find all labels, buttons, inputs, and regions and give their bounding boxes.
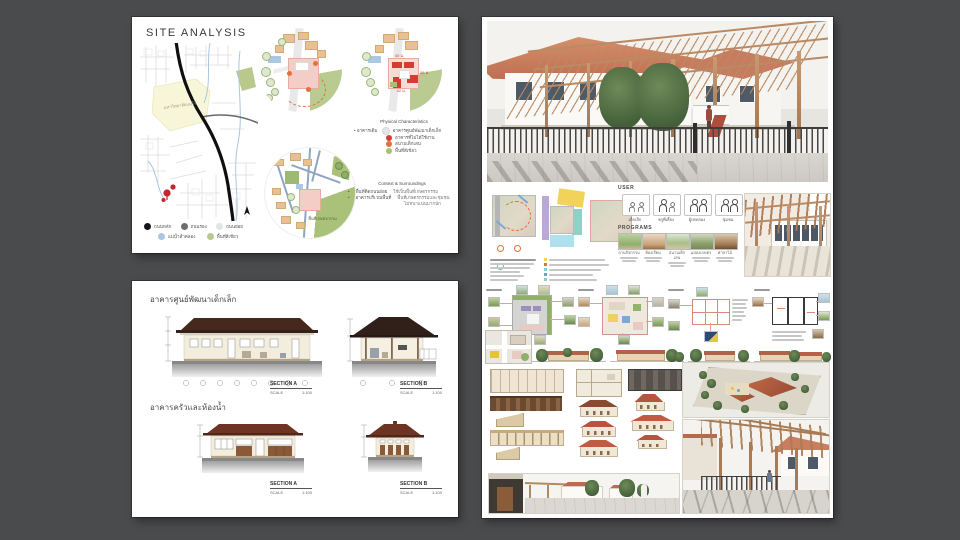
concept-notes-2 — [544, 257, 610, 282]
floor-plan-strip — [490, 369, 564, 393]
site-elevation-1 — [532, 340, 606, 364]
tree — [637, 63, 689, 131]
building1-section-b-drawing — [344, 309, 442, 391]
panorama-render — [488, 473, 680, 514]
city-street-map: มหาวิทยาลัยแม่โจ้ — [140, 43, 258, 221]
program-photo-4: แปลงเกษตร — [690, 233, 712, 264]
interior-render — [744, 193, 831, 277]
presentation-canvas: SITE ANALYSIS — [0, 0, 960, 540]
house-elevation — [580, 421, 616, 436]
hero-exterior-render — [487, 21, 828, 182]
site-analysis-board: SITE ANALYSIS — [132, 17, 458, 253]
site-elevation-4 — [754, 340, 829, 364]
wide-house-elevation — [630, 415, 674, 430]
person-figure — [767, 470, 772, 482]
gate-walkway-render — [682, 419, 830, 514]
mini-site-plan — [485, 330, 532, 364]
statue — [641, 484, 647, 497]
building2-section-a-drawing — [194, 417, 312, 479]
storefront-elevation — [490, 396, 562, 411]
ground-shadows — [487, 161, 697, 182]
section-b-label-2: SECTION B SCALE1:100 — [400, 481, 442, 495]
site-elevation-3 — [688, 340, 750, 364]
building2-title: อาคารครัวและห้องน้ำ — [150, 401, 226, 414]
section-a-label-2: SECTION A SCALE1:100 — [270, 481, 312, 495]
ground-grid-shadows — [683, 490, 829, 513]
pavilion-elevation — [636, 435, 666, 448]
concept-notes-1 — [490, 257, 538, 283]
site-analysis-title: SITE ANALYSIS — [146, 27, 247, 39]
plan-cluster-outline — [668, 287, 750, 343]
dim-top: 40 ม. — [395, 53, 404, 58]
dim-right: 56 ม. — [420, 70, 429, 75]
house-elevation — [578, 400, 618, 416]
user-group-teacher — [653, 194, 681, 216]
user-group-community — [715, 194, 743, 216]
section-a-label: SECTION A SCALE1:100 — [270, 381, 312, 395]
program-photo-3: สนามเด็กเล่น — [666, 233, 688, 269]
dim-bottom: 42 ม. — [397, 88, 406, 93]
user-title: USER — [618, 185, 634, 191]
context-legend: Context & Surroundings • พื้นที่ติดถนนย่… — [348, 181, 456, 207]
program-photo-2: ห้องเรียน — [642, 233, 664, 264]
axonometric-render — [682, 362, 830, 418]
user-group-parents — [684, 194, 712, 216]
kiosk-elevation — [634, 394, 664, 410]
unused-building — [392, 62, 402, 69]
concept-diagram-sun — [492, 195, 536, 237]
building1-title: อาคารศูนย์พัฒนาเด็กเล็ก — [150, 293, 236, 306]
site-circle-buildings: 40 ม. 56 ม. 42 ม. ▲ — [358, 28, 442, 112]
sections-strip — [628, 369, 682, 391]
user-caption: เด็กเล็ก — [622, 216, 648, 223]
square-plan — [576, 369, 622, 397]
context-circle: พื้นที่เกษตรกรรม ▲ — [264, 147, 356, 239]
site-circle-existing: ▲ — [258, 28, 342, 112]
programs-title: PROGRAMS — [618, 225, 652, 231]
program-photo-1: ลานกิจกรรม — [618, 233, 640, 264]
leanto-elevation — [496, 413, 524, 427]
user-group-children — [622, 194, 650, 216]
long-elevation — [490, 430, 564, 446]
north-arrow-icon: ▲ — [329, 101, 337, 109]
person-figure — [706, 105, 712, 129]
user-caption: ชุมชน — [715, 216, 741, 223]
leanto-elevation-2 — [496, 447, 520, 460]
plan-cluster-floorplan — [578, 287, 664, 343]
site-elevation-2 — [610, 340, 684, 364]
concept-diagram-zoning — [542, 192, 582, 247]
house-elevation — [578, 440, 618, 456]
plan-cluster-walls — [754, 287, 830, 343]
section-b-label: SECTION B SCALE1:100 — [400, 381, 442, 395]
design-board: USER เด็กเล็ก ครูพี่เลี้ยง ผู้ปกครอง ชุม… — [482, 17, 833, 518]
building1-section-a-drawing — [160, 309, 334, 391]
program-photo-5: ศาลาไม้ — [714, 233, 736, 264]
building2-section-b-drawing — [358, 417, 432, 479]
user-caption: ผู้ปกครอง — [684, 216, 710, 223]
physical-legend: Physical Characteristics • อาคารเดิม อาค… — [352, 119, 456, 154]
user-caption: ครูพี่เลี้ยง — [653, 216, 679, 223]
drawings-grid — [490, 369, 680, 469]
sections-board: อาคารศูนย์พัฒนาเด็กเล็ก — [132, 281, 458, 517]
farm-area-label: พื้นที่เกษตรกรรม — [308, 216, 337, 221]
north-arrow-icon: ▲ — [429, 101, 437, 109]
